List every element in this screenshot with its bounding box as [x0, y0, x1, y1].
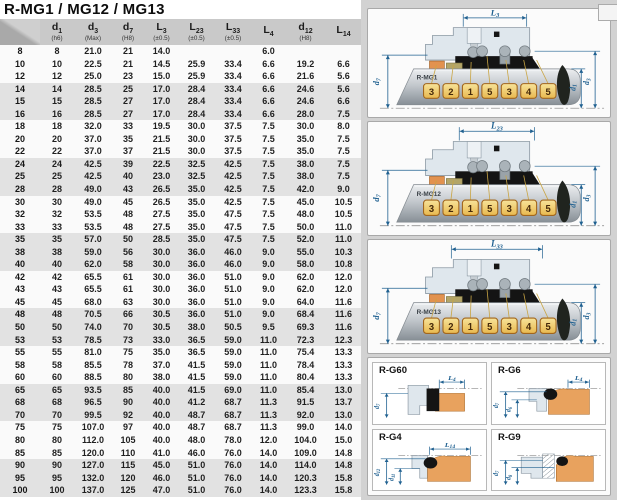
- table-row: 101022.52114.525.933.46.619.26.6: [0, 58, 361, 71]
- table-cell: 21: [112, 58, 144, 71]
- table-cell: 45.0: [285, 196, 326, 209]
- table-cell: 7.5: [326, 158, 361, 171]
- table-cell: 45: [40, 296, 74, 309]
- table-cell: 36.0: [179, 271, 214, 284]
- table-cell: 5.6: [326, 70, 361, 83]
- table-cell: 15.0: [326, 434, 361, 447]
- table-row: 383859.05630.036.046.09.055.010.3: [0, 246, 361, 259]
- table-row: 323253.54827.535.047.57.548.010.5: [0, 208, 361, 221]
- seat-diagram-rg4: R-G4 L14d12d11: [372, 429, 487, 492]
- table-cell: 37.5: [214, 133, 252, 146]
- svg-text:3: 3: [429, 204, 434, 215]
- table-cell: 30: [40, 196, 74, 209]
- table-cell: 48: [0, 308, 40, 321]
- table-cell: 123.3: [285, 484, 326, 497]
- table-header: d1(h6)d3(Max)d7(H8)L3(±0.5)L23(±0.5)L33(…: [0, 19, 361, 45]
- table-cell: 21.5: [144, 145, 179, 158]
- table-cell: 41.2: [179, 396, 214, 409]
- table-cell: 11.0: [252, 359, 285, 372]
- table-cell: 20: [40, 133, 74, 146]
- table-cell: 48: [40, 308, 74, 321]
- table-cell: 33: [0, 221, 40, 234]
- table-row: 555581.07535.036.559.011.075.413.3: [0, 346, 361, 359]
- table-cell: 68: [40, 396, 74, 409]
- table-cell: 62.0: [74, 258, 112, 271]
- svg-text:d7: d7: [372, 77, 383, 85]
- table-cell: 65.5: [74, 271, 112, 284]
- table-cell: 50: [0, 321, 40, 334]
- svg-text:3: 3: [507, 322, 512, 333]
- table-cell: 12.3: [326, 334, 361, 347]
- table-cell: 14.0: [252, 472, 285, 485]
- table-cell: 26.5: [144, 183, 179, 196]
- table-cell: 6.6: [252, 83, 285, 96]
- table-cell: [179, 45, 214, 58]
- table-cell: 7.5: [252, 208, 285, 221]
- svg-text:d3: d3: [582, 78, 592, 85]
- table-cell: 62.0: [285, 271, 326, 284]
- table-cell: 28.5: [74, 108, 112, 121]
- diagram-section: R-MG13215345L3d7d1d3 R-MG123215345L23d7d…: [361, 0, 617, 500]
- table-cell: 48: [112, 221, 144, 234]
- table-cell: 47.5: [214, 233, 252, 246]
- svg-text:d12: d12: [373, 468, 382, 476]
- table-cell: 107.0: [74, 421, 112, 434]
- seat-diagram-rg6: R-G6 L4d7d6: [491, 362, 606, 425]
- svg-text:5: 5: [545, 87, 550, 97]
- table-cell: 70: [40, 409, 74, 422]
- table-cell: 35: [40, 233, 74, 246]
- table-cell: 36.0: [179, 246, 214, 259]
- table-cell: 51.0: [179, 472, 214, 485]
- table-cell: 17.0: [144, 95, 179, 108]
- table-row: 202037.03521.530.037.57.535.07.5: [0, 133, 361, 146]
- table-cell: 7.5: [252, 183, 285, 196]
- table-cell: 80: [0, 434, 40, 447]
- part-number-boxes: 3215345: [424, 318, 557, 333]
- table-cell: 23: [112, 70, 144, 83]
- table-cell: 48.7: [179, 421, 214, 434]
- table-cell: 49.0: [74, 183, 112, 196]
- corner-notch: [598, 4, 617, 21]
- table-row: 242442.53922.532.542.57.538.07.5: [0, 158, 361, 171]
- table-cell: 35.0: [179, 208, 214, 221]
- svg-text:d7: d7: [371, 311, 382, 319]
- table-cell: 109.0: [285, 447, 326, 460]
- table-cell: 78.0: [214, 434, 252, 447]
- table-cell: 6.6: [252, 108, 285, 121]
- table-cell: 36.0: [179, 258, 214, 271]
- table-cell: 19.5: [144, 120, 179, 133]
- length-dimension: L23: [459, 122, 534, 140]
- table-cell: 30.0: [144, 283, 179, 296]
- column-header: d12(H8): [285, 19, 326, 45]
- table-cell: 28.5: [144, 233, 179, 246]
- table-cell: 11.3: [252, 421, 285, 434]
- seat-drawing: L14d12d11: [373, 441, 486, 490]
- table-cell: 76.0: [214, 447, 252, 460]
- table-cell: 51.0: [214, 308, 252, 321]
- table-row: 141428.52517.028.433.46.624.65.6: [0, 83, 361, 96]
- table-cell: 53: [40, 334, 74, 347]
- o-ring: [556, 456, 568, 466]
- table-cell: 42.5: [214, 170, 252, 183]
- table-cell: 35.0: [144, 346, 179, 359]
- bellows-and-seat: [455, 56, 540, 70]
- table-cell: 7.5: [252, 170, 285, 183]
- table-cell: 62.0: [285, 283, 326, 296]
- svg-text:5: 5: [487, 204, 493, 215]
- table-cell: 7.5: [252, 145, 285, 158]
- table-cell: 30.0: [285, 120, 326, 133]
- table-cell: 33.4: [214, 58, 252, 71]
- table-cell: 75.4: [285, 346, 326, 359]
- elastomer-cup: [427, 389, 440, 412]
- table-cell: 51.0: [214, 271, 252, 284]
- seal-diagram-rmg13: R-MG133215345L33d7d1d3: [367, 239, 611, 354]
- table-cell: [214, 45, 252, 58]
- table-cell: 37: [112, 145, 144, 158]
- table-row: 303049.04526.535.042.57.545.010.5: [0, 196, 361, 209]
- table-cell: 33.4: [214, 108, 252, 121]
- table-cell: 10.3: [326, 246, 361, 259]
- table-cell: 22: [40, 145, 74, 158]
- dia-dimension: d7: [373, 393, 408, 417]
- table-cell: 85.5: [74, 359, 112, 372]
- table-cell: 75: [40, 421, 74, 434]
- table-cell: 12: [0, 70, 40, 83]
- table-cell: 42.0: [285, 183, 326, 196]
- table-cell: 6.0: [252, 45, 285, 58]
- table-cell: 37.0: [144, 359, 179, 372]
- column-header: L23(±0.5): [179, 19, 214, 45]
- table-cell: 28.4: [179, 83, 214, 96]
- table-cell: 17.0: [144, 108, 179, 121]
- table-row: 656593.58540.041.569.011.085.413.0: [0, 384, 361, 397]
- table-cell: 35.0: [179, 233, 214, 246]
- table-cell: 70.5: [74, 308, 112, 321]
- table-cell: 38.0: [179, 321, 214, 334]
- table-cell: 45: [0, 296, 40, 309]
- svg-text:2: 2: [448, 322, 453, 333]
- table-row: 454568.06330.036.051.09.064.011.6: [0, 296, 361, 309]
- table-cell: 24: [40, 158, 74, 171]
- clamp-sleeve: [543, 453, 555, 477]
- table-row: 707099.59240.048.768.711.392.013.0: [0, 409, 361, 422]
- table-cell: 81.0: [74, 346, 112, 359]
- table-cell: 37.0: [74, 145, 112, 158]
- table-cell: 28.4: [179, 95, 214, 108]
- table-cell: 68.0: [74, 296, 112, 309]
- table-cell: 93.5: [74, 384, 112, 397]
- table-cell: 11.0: [252, 334, 285, 347]
- table-cell: 68.7: [214, 409, 252, 422]
- table-cell: 69.3: [285, 321, 326, 334]
- svg-text:d3: d3: [582, 312, 592, 319]
- table-cell: 30.0: [179, 133, 214, 146]
- table-cell: 78.4: [285, 359, 326, 372]
- seat-ring: [435, 393, 464, 411]
- seat-drawing: L4d7: [373, 374, 486, 423]
- table-cell: 55.0: [285, 246, 326, 259]
- table-cell: 60: [40, 371, 74, 384]
- table-cell: 12: [40, 70, 74, 83]
- housing: [408, 385, 428, 414]
- svg-text:L4: L4: [574, 375, 583, 383]
- table-cell: 49.0: [74, 196, 112, 209]
- table-row: 8080112.010540.048.078.012.0104.015.0: [0, 434, 361, 447]
- table-cell: 7.5: [252, 120, 285, 133]
- svg-text:5: 5: [487, 322, 493, 333]
- svg-text:d7: d7: [373, 403, 382, 409]
- table-cell: 85.4: [285, 384, 326, 397]
- table-cell: 25: [112, 83, 144, 96]
- table-cell: 68.7: [214, 421, 252, 434]
- seal-drawing: R-MG133215345L33d7d1d3: [368, 240, 610, 353]
- table-cell: 127.0: [74, 459, 112, 472]
- column-header: d7(H8): [112, 19, 144, 45]
- table-cell: 91.5: [285, 396, 326, 409]
- table-cell: 14.8: [326, 459, 361, 472]
- table-cell: 18: [0, 120, 40, 133]
- table-cell: 16: [0, 108, 40, 121]
- table-cell: 59.0: [214, 371, 252, 384]
- table-cell: 120.0: [74, 447, 112, 460]
- table-cell: 46.0: [214, 258, 252, 271]
- table-cell: 38.0: [144, 371, 179, 384]
- table-cell: 40.0: [144, 421, 179, 434]
- table-cell: 22: [0, 145, 40, 158]
- table-row: 505074.07030.538.050.59.569.311.6: [0, 321, 361, 334]
- table-cell: 21: [112, 45, 144, 58]
- table-row: 282849.04326.535.042.57.542.09.0: [0, 183, 361, 196]
- table-body: 8821.02114.06.0101022.52114.525.933.46.6…: [0, 45, 361, 497]
- table-cell: 46.0: [214, 246, 252, 259]
- table-cell: 15.0: [144, 70, 179, 83]
- table-cell: 11.0: [252, 371, 285, 384]
- table-cell: 51.0: [179, 484, 214, 497]
- table-cell: 27.5: [144, 208, 179, 221]
- table-cell: 13.0: [326, 384, 361, 397]
- table-cell: 33: [112, 120, 144, 133]
- table-cell: 42.5: [74, 158, 112, 171]
- table-cell: 88.5: [74, 371, 112, 384]
- table-cell: 14: [0, 83, 40, 96]
- table-cell: 7.5: [326, 170, 361, 183]
- table-cell: 99.0: [285, 421, 326, 434]
- table-cell: 50: [40, 321, 74, 334]
- table-cell: 50.0: [285, 221, 326, 234]
- model-label: R-MG1: [417, 75, 438, 82]
- seat-drawing: d7d8: [492, 441, 605, 490]
- table-cell: 13.3: [326, 371, 361, 384]
- table-cell: 13.3: [326, 346, 361, 359]
- table-cell: 80: [40, 434, 74, 447]
- length-dimension: L14: [430, 441, 471, 454]
- svg-text:3: 3: [429, 322, 434, 333]
- table-row: 252542.54023.032.542.57.538.07.5: [0, 170, 361, 183]
- table-cell: 72.3: [285, 334, 326, 347]
- table-cell: 55: [0, 346, 40, 359]
- table-cell: 24: [0, 158, 40, 171]
- table-cell: 51.0: [179, 459, 214, 472]
- table-cell: 14.0: [144, 45, 179, 58]
- table-cell: 120.3: [285, 472, 326, 485]
- column-header: d3(Max): [74, 19, 112, 45]
- table-cell: 10: [40, 58, 74, 71]
- seat-diagram-rg9: R-G9 d7d8: [491, 429, 606, 492]
- svg-text:4: 4: [526, 322, 532, 333]
- table-row: 333353.54827.535.047.57.550.011.0: [0, 221, 361, 234]
- table-cell: 64.0: [285, 296, 326, 309]
- table-cell: 7.5: [326, 133, 361, 146]
- svg-text:2: 2: [448, 204, 453, 215]
- table-row: 585885.57837.041.559.011.078.413.3: [0, 359, 361, 372]
- table-cell: 92: [112, 409, 144, 422]
- table-cell: 41.0: [144, 447, 179, 460]
- table-cell: 99.5: [74, 409, 112, 422]
- table-cell: 100: [0, 484, 40, 497]
- table-cell: 39: [112, 158, 144, 171]
- table-cell: 9.0: [252, 258, 285, 271]
- table-cell: 68.4: [285, 308, 326, 321]
- table-cell: [285, 45, 326, 58]
- table-cell: 80: [112, 371, 144, 384]
- table-cell: 47.5: [214, 221, 252, 234]
- table-cell: 58: [112, 258, 144, 271]
- part-number-boxes: 3215345: [424, 200, 557, 215]
- table-cell: 66: [112, 308, 144, 321]
- table-cell: 42.5: [214, 196, 252, 209]
- model-label: R-MG13: [417, 309, 442, 316]
- table-cell: 41.5: [179, 359, 214, 372]
- table-cell: 30.5: [144, 308, 179, 321]
- table-cell: 17.0: [144, 83, 179, 96]
- table-cell: 6.6: [326, 95, 361, 108]
- table-cell: 100: [40, 484, 74, 497]
- table-cell: 15.8: [326, 472, 361, 485]
- table-cell: 35.0: [179, 183, 214, 196]
- table-cell: 6.6: [252, 95, 285, 108]
- table-cell: 30.0: [144, 271, 179, 284]
- table-cell: 52.0: [285, 233, 326, 246]
- table-cell: 8: [40, 45, 74, 58]
- table-cell: 25: [40, 170, 74, 183]
- table-cell: 12.0: [326, 271, 361, 284]
- table-cell: 45.0: [144, 459, 179, 472]
- table-cell: 33.0: [144, 334, 179, 347]
- page-title: R-MG1 / MG12 / MG13: [4, 1, 165, 18]
- table-cell: 8.0: [326, 120, 361, 133]
- table-cell: 42.5: [74, 170, 112, 183]
- table-cell: 36.0: [179, 283, 214, 296]
- table-cell: 61: [112, 271, 144, 284]
- table-cell: 21.0: [74, 45, 112, 58]
- table-cell: 7.5: [252, 196, 285, 209]
- table-cell: 7.5: [252, 233, 285, 246]
- table-cell: 43: [40, 283, 74, 296]
- seal-diagram-rmg1: R-MG13215345L3d7d1d3: [367, 8, 611, 118]
- table-cell: 59.0: [214, 359, 252, 372]
- table-cell: 6.6: [252, 58, 285, 71]
- table-cell: 10.5: [326, 208, 361, 221]
- table-cell: 11.0: [326, 221, 361, 234]
- table-cell: 14.8: [326, 447, 361, 460]
- table-cell: 30.5: [144, 321, 179, 334]
- table-row: 8821.02114.06.0: [0, 45, 361, 58]
- table-cell: 90: [112, 396, 144, 409]
- table-cell: 30.0: [179, 120, 214, 133]
- table-cell: 40.0: [144, 409, 179, 422]
- length-dimension: L4: [568, 375, 589, 388]
- column-header: L33(±0.5): [214, 19, 252, 45]
- svg-text:d7: d7: [371, 193, 382, 201]
- svg-text:1: 1: [468, 322, 474, 333]
- table-row: 181832.03319.530.037.57.530.08.0: [0, 120, 361, 133]
- table-row: 424265.56130.036.051.09.062.012.0: [0, 271, 361, 284]
- table-cell: 95: [0, 472, 40, 485]
- table-cell: 36.5: [179, 346, 214, 359]
- table-cell: 35.0: [179, 221, 214, 234]
- table-cell: 12.0: [326, 283, 361, 296]
- table-cell: 35.0: [285, 133, 326, 146]
- table-cell: 10: [0, 58, 40, 71]
- table-cell: 42: [0, 271, 40, 284]
- table-cell: 59.0: [74, 246, 112, 259]
- table-cell: 33.4: [214, 70, 252, 83]
- table-cell: 15: [0, 95, 40, 108]
- table-cell: 28.5: [74, 95, 112, 108]
- table-cell: 19.2: [285, 58, 326, 71]
- table-cell: 70: [112, 321, 144, 334]
- svg-text:L23: L23: [490, 122, 504, 132]
- table-cell: 20: [0, 133, 40, 146]
- table-cell: 75: [112, 346, 144, 359]
- table-cell: 76.0: [214, 484, 252, 497]
- table-cell: 38: [0, 246, 40, 259]
- table-cell: 30: [0, 196, 40, 209]
- table-cell: 33.4: [214, 95, 252, 108]
- table-cell: 6.6: [252, 70, 285, 83]
- svg-text:L33: L33: [490, 240, 504, 250]
- table-cell: 48.0: [285, 208, 326, 221]
- table-cell: 63: [112, 296, 144, 309]
- svg-text:4: 4: [526, 87, 532, 97]
- bellows-and-seat: [455, 171, 540, 185]
- table-cell: 37.5: [214, 145, 252, 158]
- table-cell: 40: [112, 170, 144, 183]
- table-cell: 85: [40, 447, 74, 460]
- table-cell: 36.0: [179, 308, 214, 321]
- table-cell: 57.0: [74, 233, 112, 246]
- table-cell: 30.0: [179, 145, 214, 158]
- table-cell: 8: [0, 45, 40, 58]
- svg-text:5: 5: [487, 87, 492, 97]
- table-cell: 9.0: [252, 271, 285, 284]
- seat-grid: R-G60 L4d7 R-G6 L4d7d6 R-G4 L14d12d11 R-…: [372, 362, 606, 491]
- table-cell: 28.4: [179, 108, 214, 121]
- seal-diagram-rmg12: R-MG123215345L23d7d1d3: [367, 121, 611, 236]
- table-cell: 104.0: [285, 434, 326, 447]
- table-cell: 51.0: [214, 283, 252, 296]
- svg-text:d7: d7: [492, 402, 501, 408]
- table-cell: 115: [112, 459, 144, 472]
- table-cell: 69.0: [214, 384, 252, 397]
- table-cell: 56: [112, 246, 144, 259]
- table-cell: 26.5: [144, 196, 179, 209]
- table-cell: 95: [40, 472, 74, 485]
- table-cell: 11.3: [252, 396, 285, 409]
